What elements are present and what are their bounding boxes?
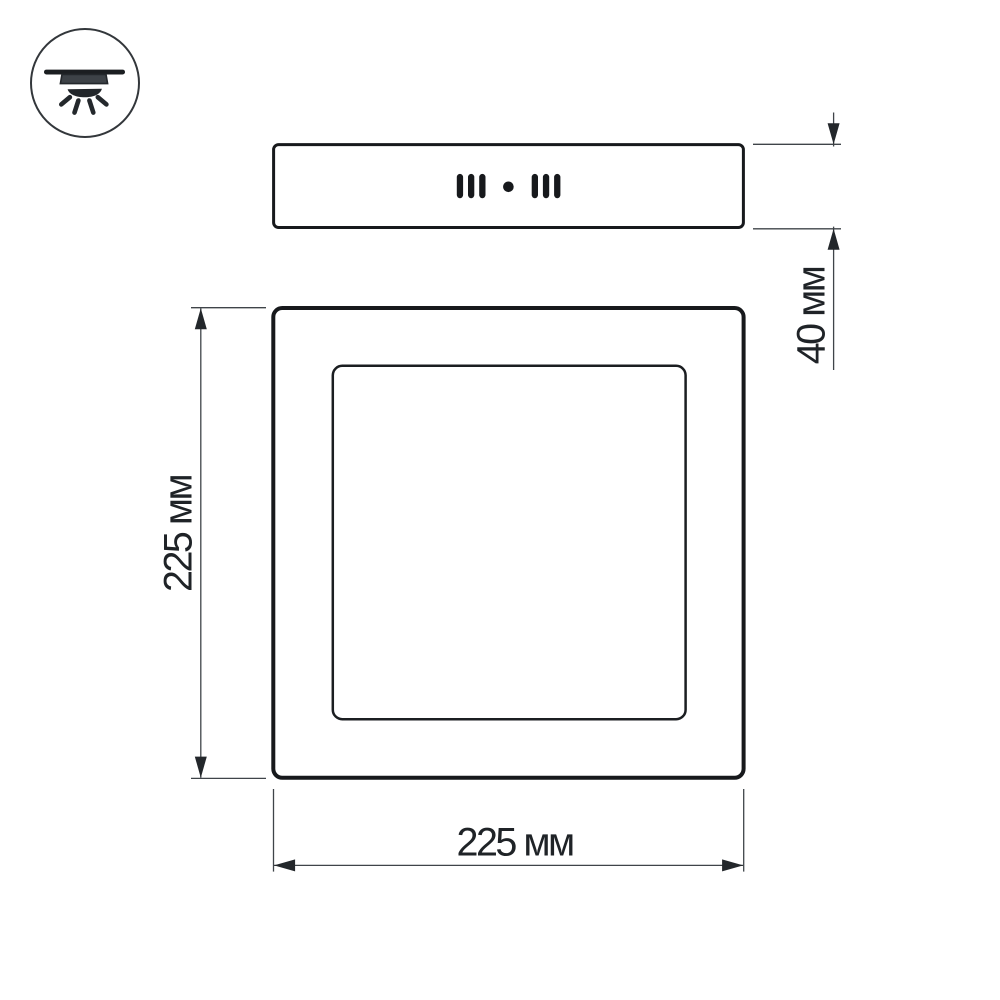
svg-text:225 мм: 225 мм: [457, 821, 574, 865]
svg-text:225 мм: 225 мм: [157, 475, 201, 592]
svg-text:40 мм: 40 мм: [789, 267, 833, 364]
